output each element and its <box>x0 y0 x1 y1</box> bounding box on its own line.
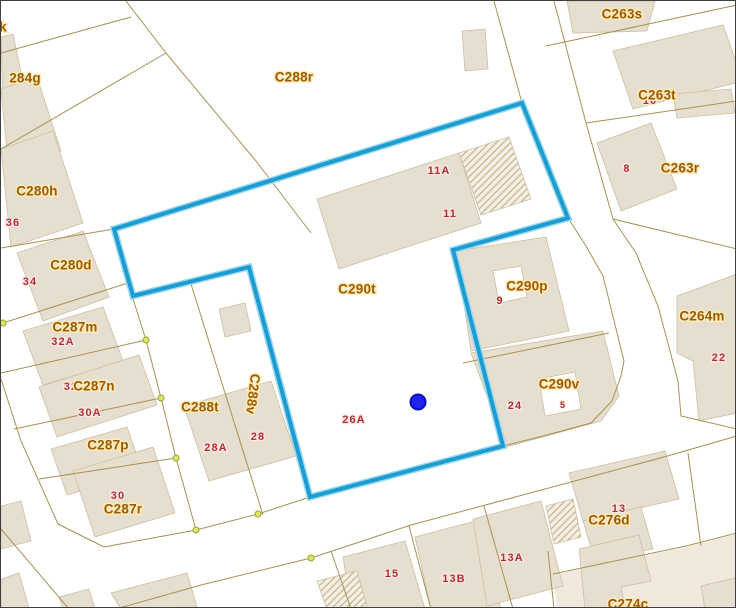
parcel-label: C290p <box>506 279 548 294</box>
parcel-label: C290v <box>539 377 580 392</box>
parcel-vertex-dot <box>158 395 164 401</box>
parcel-label: k <box>1 20 7 35</box>
parcel-label: 284g <box>9 71 41 86</box>
house-number: 13B <box>442 573 465 585</box>
parcel-label: C288t <box>181 400 219 415</box>
house-number: 36 <box>6 217 20 229</box>
parcel-vertex-dot <box>193 527 199 533</box>
parcel-boundary-line <box>494 1 522 103</box>
bldg-c276d-hatched <box>546 499 581 544</box>
house-number: 11A <box>428 165 451 177</box>
parcel-vertex-dot <box>308 555 314 561</box>
parcel-label: C287p <box>87 438 129 453</box>
parcel-boundary-line <box>688 453 701 546</box>
bldg-bottomleft-d <box>59 589 95 608</box>
parcel-label: C287n <box>73 379 115 394</box>
parcel-label: C263s <box>602 7 643 22</box>
parcel-boundary-line <box>1 17 131 53</box>
house-number: 5 <box>560 400 566 410</box>
house-number: 32A <box>51 336 74 348</box>
house-number: 26A <box>342 414 365 426</box>
parcel-vertex-dot <box>173 455 179 461</box>
parcel-vertex-dot <box>255 511 261 517</box>
parcel-label: C290t <box>338 282 376 297</box>
bldg-stem-square <box>219 303 251 337</box>
parcel-vertex-dot <box>1 320 6 326</box>
parcel-label: C263r <box>661 161 700 176</box>
cadastral-map-viewport[interactable]: 363432A3230A3028A2826A24592211A118101313… <box>0 0 736 608</box>
parcel-label: C274c <box>608 597 649 608</box>
bldg-bottomleft-a <box>111 573 197 608</box>
parcel-label: C288r <box>275 70 314 85</box>
house-number: 30A <box>78 407 101 419</box>
selected-point-marker[interactable] <box>411 395 426 410</box>
house-number: 28 <box>251 431 265 443</box>
parcel-label: C264m <box>679 309 724 324</box>
house-number: 8 <box>623 163 630 175</box>
parcel-label: C280h <box>16 184 58 199</box>
parcel-label: C287r <box>104 502 143 517</box>
house-number: 22 <box>712 352 726 364</box>
parcel-label: C276d <box>588 513 630 528</box>
parcel-label: C287m <box>52 320 97 335</box>
bldg-c264m <box>677 274 736 421</box>
parcel-label: C280d <box>50 258 92 273</box>
bldg-c263t-step <box>673 89 735 118</box>
bldg-bottomleft-c <box>1 573 29 608</box>
bldg-28-28a <box>184 381 296 481</box>
parcel-boundary-line <box>613 219 736 249</box>
parcel-vertex-dot <box>143 337 149 343</box>
parcel-label: C263t <box>638 88 676 103</box>
house-number: 11 <box>443 208 457 220</box>
house-number: 9 <box>496 295 503 307</box>
bldg-c288r-small <box>462 29 488 71</box>
bldg-bottomleft-b <box>1 501 31 549</box>
house-number: 13A <box>500 552 523 564</box>
cadastral-map-canvas[interactable]: 363432A3230A3028A2826A24592211A118101313… <box>1 1 736 608</box>
house-number: 15 <box>385 568 399 580</box>
house-number: 24 <box>508 400 522 412</box>
house-number: 30 <box>111 490 125 502</box>
house-number: 28A <box>204 442 227 454</box>
house-number: 34 <box>23 276 37 288</box>
